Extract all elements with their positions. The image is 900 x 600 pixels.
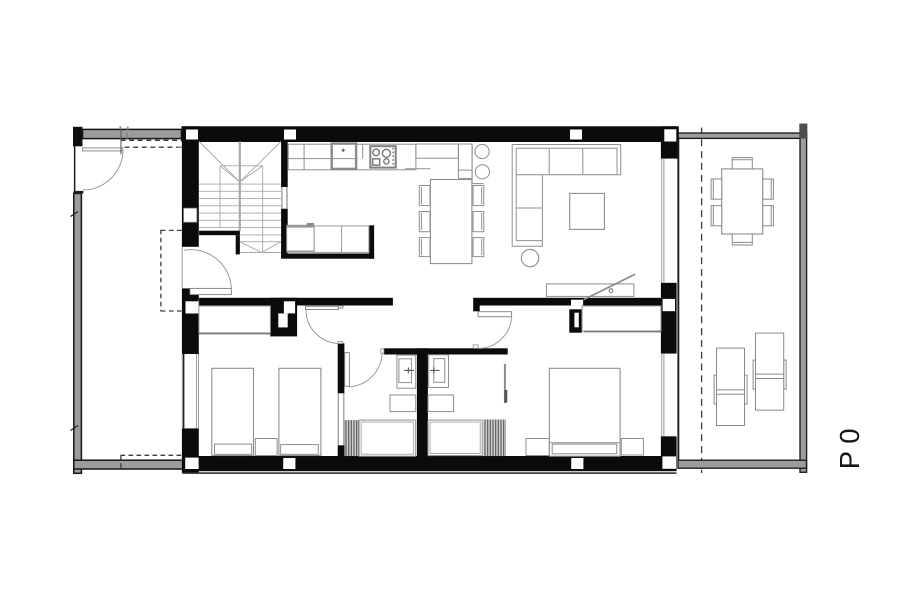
- svg-text:P 0: P 0: [834, 428, 865, 469]
